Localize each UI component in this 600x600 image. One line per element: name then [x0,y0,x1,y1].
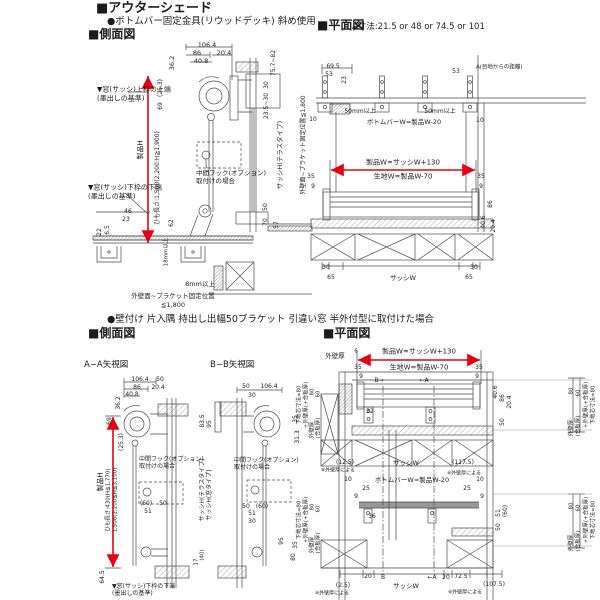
drawing-label: 取付けの場合 [139,464,175,470]
drawing-label: 30 [248,393,256,399]
drawing-label: ボトムバーW=製品W-20 [375,477,449,484]
drawing-label: 32 [366,409,374,415]
drawing-label: 35 [307,174,315,180]
drawing-label: 62 [169,219,175,227]
drawing-label: ※外壁厚による [315,592,349,597]
drawing-label: 50mm以上 [424,109,455,115]
drawing-label: 30 [470,265,478,271]
drawing-label: (60) [140,501,152,507]
drawing-label: 20 [364,574,372,580]
drawing-label: ボトムバーW=製品W-20 [367,119,441,126]
drawing-label: 23 [122,217,130,223]
drawing-label: 75.7~82 [271,50,277,76]
drawing-label: 製品W=サッシW+130 [382,349,456,356]
drawing-label: 9 [480,494,484,500]
drawing-label: 20.4 [151,385,164,391]
drawing-label: 9 [359,374,363,380]
drawing-label: (60) [503,505,509,517]
drawing-label: ←A [419,378,428,384]
drawing-label: 65 [465,275,473,281]
drawing-label: 60 [576,505,582,512]
drawing-label: 51 [248,511,256,517]
drawing-label: 30 [264,81,270,89]
drawing-label: 40.8 [125,392,138,398]
drawing-label: +外壁厚(+合板厚) [584,382,590,429]
drawing-label: 取付けの場合 [234,465,270,471]
drawing-label: +外壁厚(+合板厚) [584,497,590,544]
drawing-label: 25 [362,486,370,492]
drawing-label: 53 [325,72,333,78]
drawing-label: 60 [576,390,582,397]
drawing-label: ←A [427,575,436,581]
drawing-label: サッシW [393,583,419,590]
drawing-label: 25 [463,486,471,492]
drawing-label: (合板厚) [316,418,322,439]
drawing-label: ※外壁厚による [448,591,482,596]
drawing-label: 80 [569,388,575,395]
drawing-label: A(目地からの距離) [476,65,523,71]
drawing-label: 9 [311,184,315,190]
drawing-label: 取付けの場合 [196,178,235,185]
drawing-label: 1,500(2,200≦H≦3,100) [113,468,119,533]
drawing-label: B→ [374,378,383,384]
drawing-label: 22 [97,228,103,236]
drawing-label: 生地W=製品W-70 [390,365,449,372]
drawing-label: 31.3 [295,430,301,443]
drawing-label: 外壁面~ブラケット固定位置 [131,293,214,300]
drawing-label: ※外壁厚による [321,469,355,474]
drawing-label: 40.6 [481,215,487,228]
drawing-label: 製品H [138,140,145,159]
drawing-label: (2.5) [336,583,350,589]
drawing-label: 10 [476,118,484,124]
drawing-label: (25.3) [119,433,125,451]
drawing-label: 30 [248,519,256,525]
drawing-label: サッシH(窓タイプ) [207,469,213,520]
drawing-label: 70 [263,218,269,226]
drawing-label: 60 [316,391,322,398]
drawing-label: 10 [344,477,352,483]
drawing-label: 50 [263,203,269,211]
drawing-label: 外壁厚 [325,353,345,360]
drawing-label: 36.2 [116,396,122,409]
drawing-label: ≦1,800 [161,302,185,309]
drawing-label: 20.4 [217,50,231,57]
drawing-label: 外壁厚 [569,420,575,437]
drawing-label: (117.5) [452,460,474,466]
drawing-label: 23 [342,76,348,84]
drawing-label: ▼窓(サッシ)下枠の下端 [88,185,162,192]
drawing-label: 51 [144,509,152,515]
drawing-label: 50mm以上 [344,109,375,115]
drawing-label: サッシH(テラスタイプ) [277,121,284,189]
drawing-label: 20.4 [507,395,513,408]
drawing-label: 20.4 [491,219,497,232]
drawing-label: (25.3) [158,79,164,97]
drawing-label: サッシW [393,460,419,467]
drawing-label: 36 [368,514,376,520]
drawing-label: 80 [291,553,297,561]
drawing-label: 下地芯寸法=80 [297,500,303,539]
drawing-label: 69 [107,417,113,425]
drawing-label: 下地芯寸法=80 [591,385,597,424]
drawing-label: 64.5 [100,570,106,583]
drawing-label: 18mm以上 [164,238,170,267]
labels-layer: 106.48620.440.836.2▼窓(サッシ)上枠の上端(墨出しの基準)(… [0,0,600,600]
drawing-label: 外壁厚 [569,535,575,552]
drawing-label: 10 [309,117,317,123]
drawing-label: (墨出しの基準) [88,194,135,201]
drawing-label: 53 [452,69,460,75]
drawing-label: (墨出しの基準) [112,591,153,597]
drawing-label: ひも長さ:1,500(2,200:H≧1,900) [155,131,161,225]
drawing-label: (12.5) [336,460,354,466]
drawing-label: 65 [327,275,335,281]
drawing-label: 50 [156,377,164,383]
drawing-label: (墨出しの基準) [97,96,144,103]
drawing-label: 下地芯寸法=80 [591,500,597,539]
drawing-label: 20 [442,575,450,581]
drawing-label: 9 [479,184,483,190]
drawing-label: (合板厚) [576,416,582,437]
drawing-label: 35 [354,365,362,371]
drawing-label: 60 [316,506,322,513]
drawing-label: 17 [194,559,200,566]
drawing-label: 35 [475,365,483,371]
drawing-label: 6 [354,349,358,355]
drawing-label: B [381,575,385,581]
drawing-label: 10 [476,477,484,483]
drawing-label: (40) [200,549,206,560]
drawing-label: 50 [242,384,250,390]
drawing-sheet: ■アウターシェード ●ボトムバー固定金具(リウッドデッキ) 斜め使用 ■側面図 … [0,0,600,600]
drawing-label: 製品W=サッシW+130 [366,160,440,167]
drawing-label: 69.5 [326,64,339,70]
drawing-label: 9 [475,374,479,380]
drawing-label: 50 [500,418,506,426]
drawing-label: 86 [193,50,201,57]
drawing-label: 30 [322,265,330,271]
drawing-label: 中間フック(オプション) [196,170,266,177]
drawing-label: ひも長さ:430(H≦1,770) [106,468,112,531]
drawing-label: 23.5~30 [264,93,270,119]
drawing-label: 生地W=製品W-70 [374,174,433,181]
drawing-label: 36.2 [169,56,176,70]
drawing-label: 80 [569,503,575,510]
drawing-label: 57 [274,221,280,229]
drawing-label: 106.4 [131,377,148,383]
drawing-label: 95 [207,420,213,428]
drawing-label: (107.5) [483,582,505,588]
drawing-label: 86 [488,200,494,208]
drawing-label: 95 [279,537,285,545]
drawing-label: 72.5 [454,574,467,580]
drawing-label: 106.4 [260,384,277,390]
drawing-label: 製品H [98,472,105,491]
drawing-label: (合板厚) [576,531,582,552]
drawing-label: 50 [159,501,167,507]
drawing-label: 50 [496,523,502,531]
drawing-label: 35 [477,174,485,180]
drawing-label: 8mm以上 [185,281,215,288]
drawing-label: 6.5 [105,225,111,235]
drawing-label: 35 [293,541,299,549]
drawing-label: 46 [124,209,132,215]
drawing-label: 69 [158,102,164,110]
drawing-label: (合板厚) [316,533,322,554]
drawing-label: 40.8 [194,58,208,65]
drawing-label: 下地芯寸法=80 [297,385,303,424]
drawing-label: (60) [256,504,268,510]
drawing-label: サッシW [390,275,416,282]
drawing-label: 外壁面~ブラケット固定位置≦1,800 [301,95,307,194]
drawing-label: 9 [354,494,358,500]
drawing-label: 106.4 [198,42,217,49]
